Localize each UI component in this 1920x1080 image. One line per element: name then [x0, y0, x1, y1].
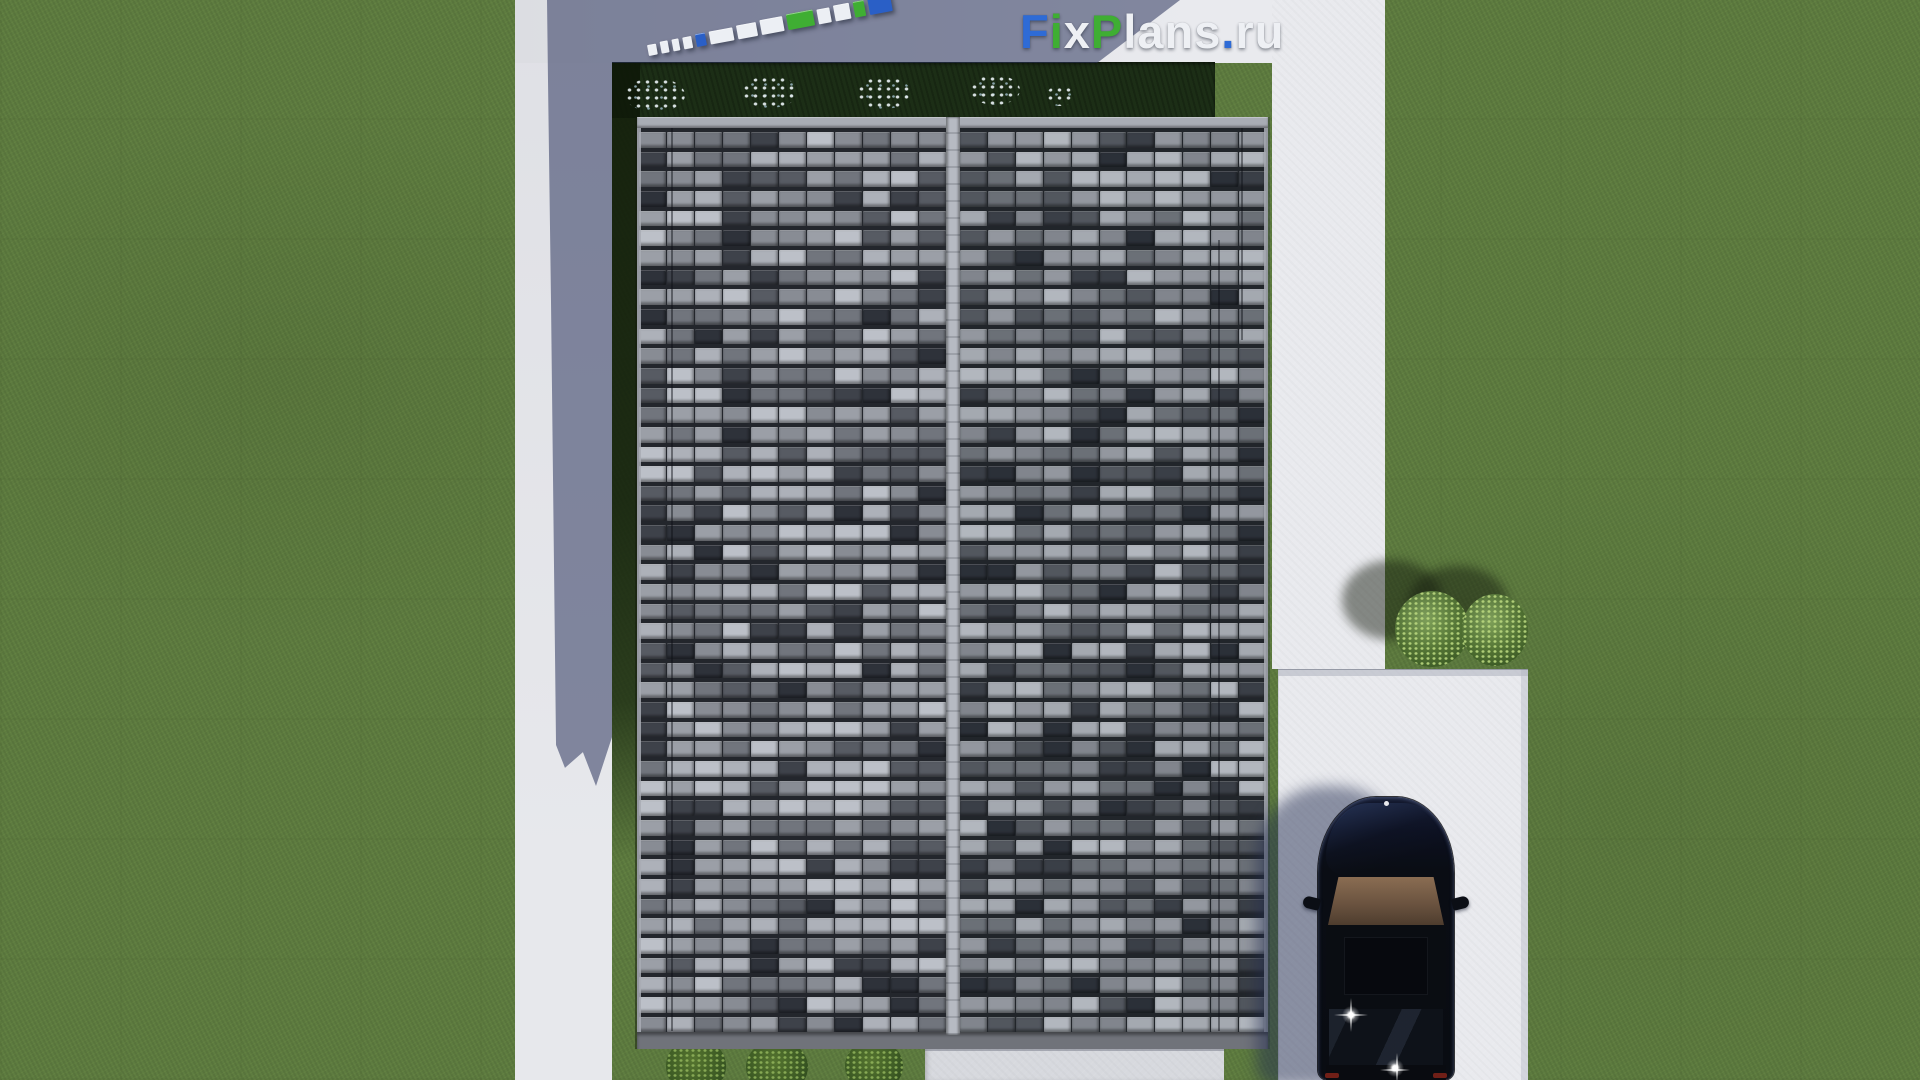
- roof-tile-row: [960, 954, 1266, 974]
- roof-tile-row: [639, 148, 946, 168]
- logo3d-segment: [647, 44, 658, 56]
- roof-panel-right: [960, 128, 1266, 1032]
- watermark-letter: F: [1020, 5, 1050, 58]
- roof-tile-row: [960, 875, 1266, 895]
- roof-panel-left: [639, 128, 946, 1032]
- roof-tile-row: [960, 344, 1266, 364]
- roof-tile-row: [639, 344, 946, 364]
- roof-tile-row: [639, 639, 946, 659]
- car-antenna-dot: [1384, 801, 1389, 806]
- roof-tile-row: [960, 325, 1266, 345]
- roof-tile-row: [960, 246, 1266, 266]
- roof-tile-row: [639, 777, 946, 797]
- logo3d-segment: [816, 7, 832, 24]
- roof-tile-row: [960, 698, 1266, 718]
- roof-tile-row: [639, 1013, 946, 1033]
- roof-tile-row: [960, 718, 1266, 738]
- roof-tile-row: [639, 875, 946, 895]
- logo3d-segment: [853, 0, 867, 18]
- roof-tile-row: [639, 737, 946, 757]
- roof-tile-row: [960, 207, 1266, 227]
- flower-cluster: [625, 78, 685, 112]
- car-windshield: [1328, 877, 1444, 925]
- roof-tile-row: [639, 443, 946, 463]
- roof-tile-row: [639, 364, 946, 384]
- roof-tile-row: [960, 128, 1266, 148]
- roof-tile-row: [960, 266, 1266, 286]
- roof-tile-row: [639, 423, 946, 443]
- roof-tile-row: [960, 639, 1266, 659]
- roof-tile-row: [960, 305, 1266, 325]
- roof-tile-row: [639, 895, 946, 915]
- roof-tile-row: [639, 305, 946, 325]
- roof-tile-row: [960, 914, 1266, 934]
- roof-tile-row: [960, 580, 1266, 600]
- roof-tile-row: [960, 895, 1266, 915]
- roof-tile-row: [639, 325, 946, 345]
- hedge-strip: [612, 62, 1215, 118]
- car-sunroof: [1344, 937, 1428, 995]
- watermark-letter: i: [1050, 5, 1064, 58]
- roof-tile-row: [960, 541, 1266, 561]
- watermark-letter: x: [1064, 5, 1091, 58]
- roof-tile-row: [960, 364, 1266, 384]
- roof-tile-row: [960, 423, 1266, 443]
- roof-tile-row: [639, 934, 946, 954]
- logo3d-segment: [682, 36, 693, 49]
- roof-side-shadow-strip: [612, 62, 640, 862]
- roof-tile-row: [639, 698, 946, 718]
- roof-tile-row: [639, 285, 946, 305]
- roof-tile-row: [639, 384, 946, 404]
- roof-tile-row: [639, 914, 946, 934]
- roof-tile-row: [960, 619, 1266, 639]
- roof-tile-row: [960, 285, 1266, 305]
- car-taillight-left: [1325, 1073, 1339, 1078]
- roof-tile-row: [639, 816, 946, 836]
- house-roof: [637, 117, 1268, 1049]
- roof-tile-row: [960, 993, 1266, 1013]
- roof-tile-row: [639, 482, 946, 502]
- roof-tile-row: [960, 973, 1266, 993]
- roof-tile-row: [960, 934, 1266, 954]
- roof-tile-row: [639, 266, 946, 286]
- roof-tile-row: [639, 600, 946, 620]
- roof-tile-row: [639, 993, 946, 1013]
- roof-tile-row: [639, 580, 946, 600]
- roof-tile-row: [960, 384, 1266, 404]
- roof-tile-row: [960, 737, 1266, 757]
- roof-tile-row: [960, 855, 1266, 875]
- flower-cluster: [742, 76, 798, 108]
- watermark-letter: lans: [1123, 5, 1221, 58]
- roof-tile-row: [639, 403, 946, 423]
- roof-tile-row: [960, 443, 1266, 463]
- roof-tile-row: [960, 148, 1266, 168]
- flower-cluster: [857, 77, 911, 109]
- roof-tile-row: [639, 973, 946, 993]
- watermark-letter: ru: [1235, 5, 1284, 58]
- roof-tile-row: [639, 226, 946, 246]
- flower-cluster: [1046, 86, 1074, 106]
- roof-seam: [671, 128, 673, 1031]
- roof-tile-row: [639, 836, 946, 856]
- roof-tile-row: [639, 718, 946, 738]
- aerial-site-render: FixPlans.ru: [0, 0, 1920, 1080]
- roof-tile-row: [960, 482, 1266, 502]
- car: [1318, 797, 1454, 1080]
- roof-seam: [1241, 128, 1243, 340]
- roof-tile-row: [960, 678, 1266, 698]
- roof-tile-row: [960, 757, 1266, 777]
- car-body: [1318, 797, 1454, 1080]
- roof-tile-row: [960, 560, 1266, 580]
- logo3d-segment: [833, 3, 852, 22]
- roof-tile-row: [639, 659, 946, 679]
- roof-tile-row: [639, 246, 946, 266]
- roof-tile-row: [639, 954, 946, 974]
- roof-tile-row: [639, 207, 946, 227]
- roof-edge-left: [637, 117, 641, 1032]
- roof-tile-row: [639, 757, 946, 777]
- watermark-letter: P: [1091, 5, 1123, 58]
- roof-tile-row: [639, 501, 946, 521]
- roof-ridge: [946, 117, 960, 1035]
- watermark-letter: .: [1221, 5, 1235, 58]
- roof-seam: [1218, 240, 1220, 1031]
- roof-tile-row: [960, 521, 1266, 541]
- bush: [1395, 591, 1469, 667]
- car-taillight-right: [1433, 1073, 1447, 1078]
- bush: [1462, 594, 1528, 666]
- roof-tile-row: [639, 462, 946, 482]
- watermark-logo: FixPlans.ru: [1020, 6, 1284, 58]
- roof-tile-row: [960, 816, 1266, 836]
- roof-tile-row: [960, 403, 1266, 423]
- car-hood: [1326, 803, 1446, 875]
- sun-glint-icon: [1382, 1055, 1408, 1080]
- logo3d-segment: [695, 32, 707, 47]
- logo3d-segment: [671, 38, 680, 51]
- roof-tile-row: [960, 796, 1266, 816]
- rear-patio-pad: [925, 1048, 1224, 1080]
- roof-tile-row: [960, 501, 1266, 521]
- roof-tile-row: [960, 226, 1266, 246]
- roof-tile-row: [960, 167, 1266, 187]
- roof-tile-row: [639, 128, 946, 148]
- roof-tile-row: [639, 521, 946, 541]
- logo3d-segment: [660, 40, 670, 53]
- roof-tile-row: [639, 678, 946, 698]
- roof-tile-row: [960, 659, 1266, 679]
- roof-tile-row: [639, 796, 946, 816]
- roof-tile-row: [960, 462, 1266, 482]
- roof-tile-row: [960, 777, 1266, 797]
- roof-tile-row: [639, 187, 946, 207]
- roof-tile-row: [639, 167, 946, 187]
- roof-tile-row: [960, 187, 1266, 207]
- roof-tile-row: [960, 1013, 1266, 1033]
- roof-tile-row: [960, 600, 1266, 620]
- roof-tile-row: [639, 855, 946, 875]
- sun-glint-icon: [1336, 1000, 1366, 1030]
- roof-tile-row: [960, 836, 1266, 856]
- flower-cluster: [970, 75, 1020, 105]
- roof-tile-row: [639, 541, 946, 561]
- roof-tile-row: [639, 619, 946, 639]
- roof-tile-row: [639, 560, 946, 580]
